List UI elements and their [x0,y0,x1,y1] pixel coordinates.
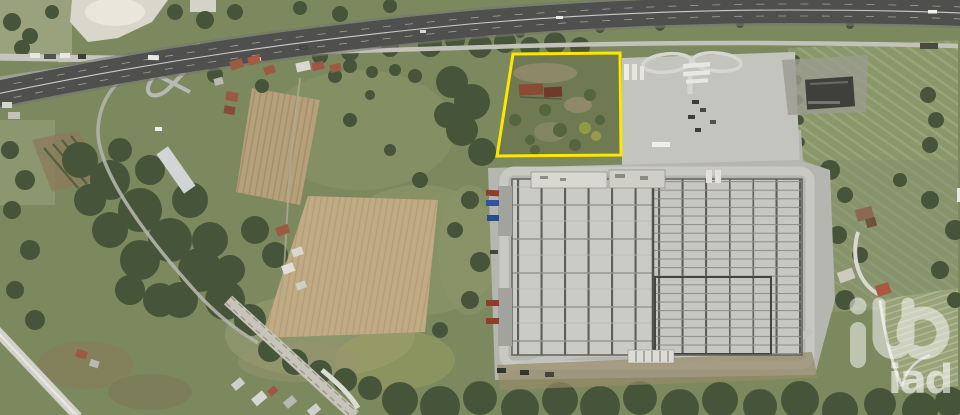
aerial-photo-canvas: iad [0,0,960,415]
derelict-shed [782,55,868,115]
satellite-image: iad [0,0,960,415]
highlighted-parcel [497,53,621,156]
warehouse-roof [512,170,802,355]
watermark-brand-text: iad [888,357,951,403]
